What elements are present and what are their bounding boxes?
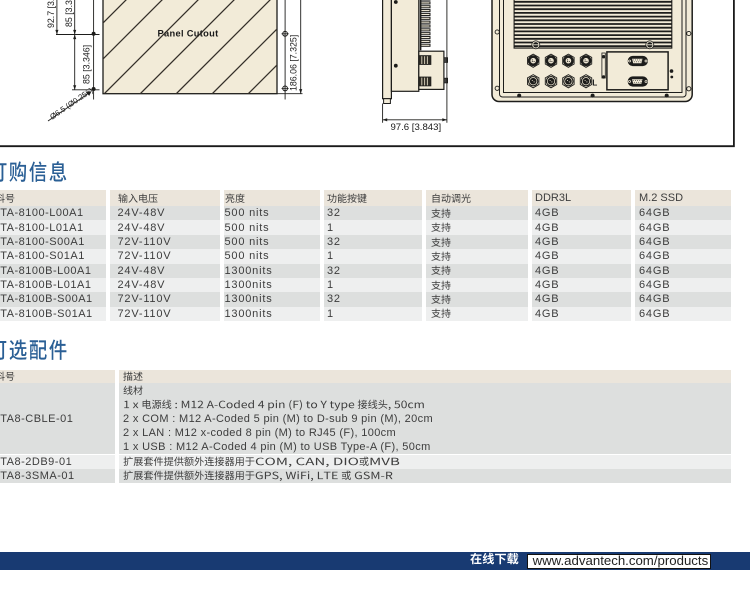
svg-text:92.7 [3.652]: 92.7 [3.652] [46,0,56,28]
svg-text:85 [3.346]: 85 [3.346] [64,0,74,27]
svg-text:Ø6.5 (Ø0.256): Ø6.5 (Ø0.256) [48,86,95,122]
svg-text:L: L [592,79,597,88]
svg-text:97.6 [3.843]: 97.6 [3.843] [390,122,441,133]
svg-text:Panel Cutout: Panel Cutout [158,29,219,39]
svg-text:186.06 [7.325]: 186.06 [7.325] [289,35,299,91]
svg-text:85 [3.346]: 85 [3.346] [82,45,92,84]
